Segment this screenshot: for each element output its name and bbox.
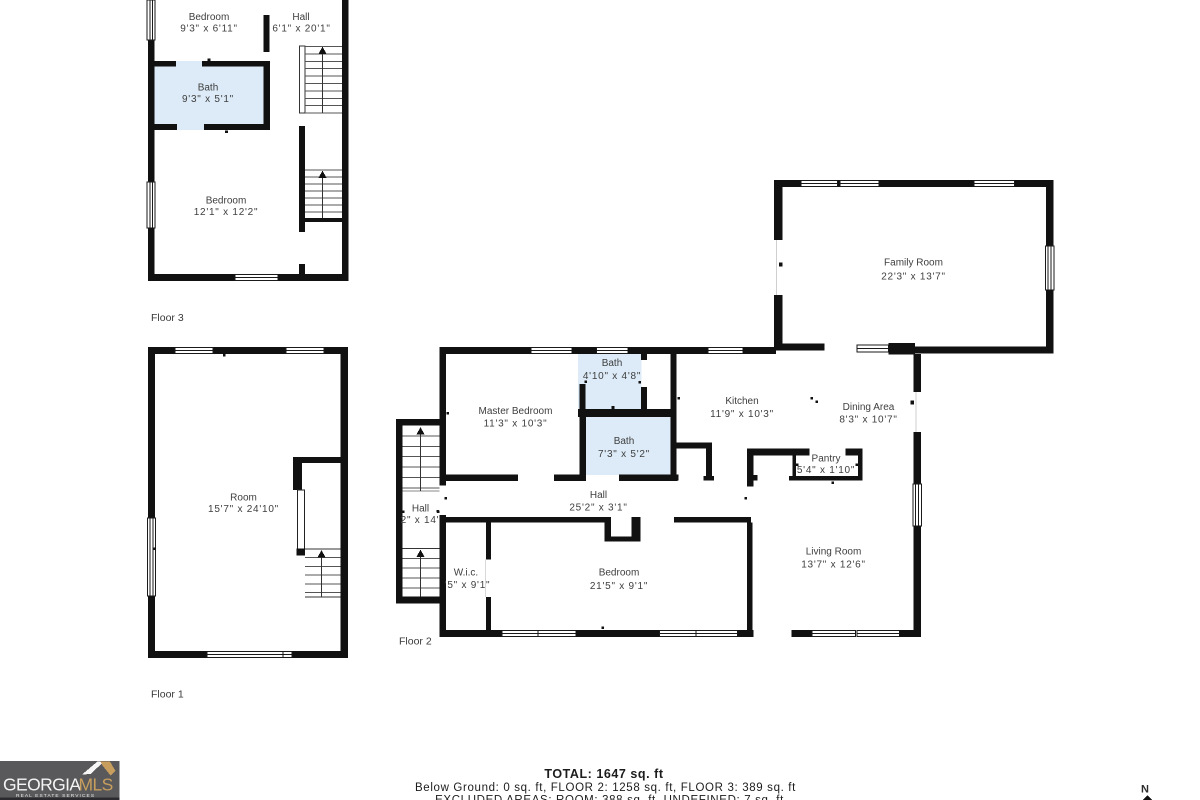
svg-text:6'1" x 20'1": 6'1" x 20'1" xyxy=(272,24,330,35)
svg-text:Bath: Bath xyxy=(614,436,635,447)
svg-text:22'3" x 13'7": 22'3" x 13'7" xyxy=(881,272,946,283)
svg-text:21'5" x 9'1": 21'5" x 9'1" xyxy=(590,581,648,592)
svg-text:Pantry: Pantry xyxy=(812,454,841,465)
svg-text:Bedroom: Bedroom xyxy=(206,196,247,207)
svg-text:Dining Area: Dining Area xyxy=(843,402,895,413)
svg-text:25'2" x 3'1": 25'2" x 3'1" xyxy=(569,503,627,514)
svg-text:Hall: Hall xyxy=(412,504,429,515)
svg-text:Living Room: Living Room xyxy=(806,547,862,558)
svg-text:12'1" x 12'2": 12'1" x 12'2" xyxy=(194,207,259,218)
svg-text:Floor 3: Floor 3 xyxy=(151,312,184,324)
svg-text:Floor 1: Floor 1 xyxy=(151,689,184,701)
svg-text:EXCLUDED AREAS: ROOM: 388 sq.: EXCLUDED AREAS: ROOM: 388 sq. ft, UNDEFI… xyxy=(435,795,784,800)
svg-text:Bath: Bath xyxy=(198,83,219,94)
svg-text:2" x 14': 2" x 14' xyxy=(401,515,440,526)
svg-text:Hall: Hall xyxy=(292,12,309,23)
svg-text:Floor 2: Floor 2 xyxy=(399,636,432,648)
svg-text:8'3" x 10'7": 8'3" x 10'7" xyxy=(839,415,897,426)
svg-text:9'3" x 6'11": 9'3" x 6'11" xyxy=(180,24,238,35)
svg-text:11'3" x 10'3": 11'3" x 10'3" xyxy=(484,419,548,430)
svg-text:13'7" x 12'6": 13'7" x 12'6" xyxy=(801,560,866,571)
svg-text:TOTAL: 1647 sq. ft: TOTAL: 1647 sq. ft xyxy=(544,767,663,781)
svg-text:5'4" x 1'10": 5'4" x 1'10" xyxy=(797,465,855,476)
svg-text:Room: Room xyxy=(230,493,257,504)
svg-text:9'3" x 5'1": 9'3" x 5'1" xyxy=(182,94,234,105)
svg-text:Below Ground: 0 sq. ft, FLOOR: Below Ground: 0 sq. ft, FLOOR 2: 1258 sq… xyxy=(415,782,796,794)
svg-text:REAL ESTATE SERVICES: REAL ESTATE SERVICES xyxy=(16,793,95,799)
svg-text:Master Bedroom: Master Bedroom xyxy=(479,406,553,417)
svg-text:Bath: Bath xyxy=(602,358,623,369)
svg-text:7'3" x 5'2": 7'3" x 5'2" xyxy=(598,449,650,460)
svg-text:Bedroom: Bedroom xyxy=(189,12,230,23)
svg-text:Kitchen: Kitchen xyxy=(725,396,758,407)
svg-text:MLS: MLS xyxy=(79,775,113,795)
svg-text:'5" x 9'1": '5" x 9'1" xyxy=(445,580,491,591)
svg-text:Family Room: Family Room xyxy=(884,258,943,269)
svg-text:4'10" x 4'8": 4'10" x 4'8" xyxy=(583,371,641,382)
svg-text:GEORGIA: GEORGIA xyxy=(3,775,81,795)
svg-text:Hall: Hall xyxy=(590,490,607,501)
svg-text:Bedroom: Bedroom xyxy=(599,568,640,579)
svg-text:N: N xyxy=(1141,784,1149,796)
svg-text:15'7" x 24'10": 15'7" x 24'10" xyxy=(208,504,279,515)
svg-text:W.i.c.: W.i.c. xyxy=(454,568,478,579)
svg-text:11'9" x 10'3": 11'9" x 10'3" xyxy=(710,409,774,420)
